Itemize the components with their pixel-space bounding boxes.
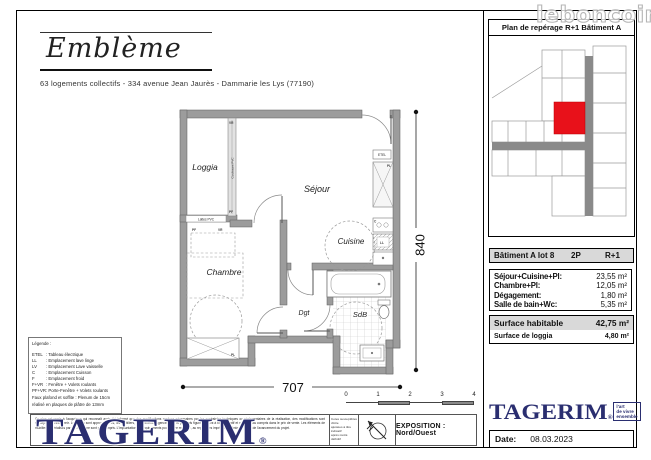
scale-tick: 1: [376, 392, 379, 398]
program-logo: Emblème: [46, 33, 182, 64]
room-label-loggia: Loggia: [192, 162, 218, 172]
lot-header: Bâtiment A lot 8 2P R+1: [489, 248, 634, 263]
row-label: Chambre+Pl:: [494, 281, 540, 290]
surface-habitable-row: Surface habitable 42,75 m²: [490, 316, 633, 330]
pf-label: PF: [192, 228, 196, 232]
tagerim-logo-small: TAGERIM® l'art de vivre ensemble: [489, 398, 634, 425]
surface-summary: Surface habitable 42,75 m² Surface de lo…: [489, 315, 634, 344]
bathtub: [327, 271, 391, 297]
scale-tick: 2: [408, 392, 411, 398]
door-arc: [288, 270, 313, 295]
dimension-note: Cotes susceptibles d'être ajustées à tit…: [329, 415, 358, 445]
lot-title: Bâtiment A lot 8: [490, 251, 571, 260]
room-label-sejour: Séjour: [304, 184, 331, 194]
svg-text:707: 707: [282, 380, 304, 395]
toilet: [378, 300, 390, 305]
floor-plan: VR PF Coulissant PVC Lattes PVC PF VR ET…: [150, 96, 435, 401]
surfaces-table: Séjour+Cuisine+Pl: 23,55 m² Chambre+Pl: …: [489, 269, 632, 311]
legend-title: Légende :: [32, 341, 118, 347]
brand-rule-bottom: [40, 69, 212, 71]
vr-label: VR: [218, 228, 223, 232]
table-row: Chambre+Pl: 12,05 m²: [494, 281, 627, 290]
row-label: Séjour+Cuisine+Pl:: [494, 272, 562, 281]
registered-mark: ®: [259, 436, 267, 446]
entrance-door-arc: [362, 115, 391, 144]
table-row: Dégagement: 1,80 m²: [494, 291, 627, 300]
location-map: [490, 37, 631, 232]
column-divider: [483, 10, 484, 447]
program-address: 63 logements collectifs - 334 avenue Jea…: [40, 79, 314, 88]
legend-note: Faux plafond et soffite : Plenum de 15cm: [32, 395, 118, 401]
corridor-vertical: [585, 56, 593, 216]
compass-cell: [358, 415, 395, 445]
room-label-chambre: Chambre: [207, 267, 242, 277]
room-label-sdb: SdB: [353, 310, 367, 319]
room-label-cuisine: Cuisine: [338, 237, 365, 246]
plan-sheet: Emblème 63 logements collectifs - 334 av…: [0, 0, 651, 460]
etel-box: ETEL: [378, 153, 386, 157]
table-row: Salle de bain+Wc: 5,35 m²: [494, 300, 627, 309]
vr-label: VR: [229, 121, 234, 125]
scale-tick: 0: [344, 392, 347, 398]
lattes-pvc-label: Lattes PVC: [198, 217, 215, 221]
compass-icon: [364, 417, 390, 443]
legend-note: réalisé en plaques de plâtre de 13mm: [32, 402, 118, 408]
row-value: 4,80 m²: [605, 333, 629, 340]
table-row: Séjour+Cuisine+Pl: 23,55 m²: [494, 272, 627, 281]
svg-text:840: 840: [413, 234, 428, 256]
door-arc: [257, 307, 283, 333]
row-value: 23,55 m²: [596, 272, 627, 281]
wardrobe-outline: [191, 233, 235, 257]
pf-label: PF: [229, 210, 233, 214]
lot-type: 2P: [571, 251, 605, 260]
row-label: Surface habitable: [494, 318, 563, 328]
legend-box: Légende : ETEL: Tableau électrique LL: E…: [28, 337, 122, 414]
highlighted-unit: [554, 102, 585, 134]
door-arc: [254, 195, 282, 223]
row-label: Dégagement:: [494, 291, 541, 300]
door-arc: [304, 305, 330, 331]
row-value: 5,35 m²: [601, 300, 627, 309]
scale-tick: 4: [472, 392, 475, 398]
registered-mark: ®: [608, 415, 613, 421]
location-map-box: Plan de repérage R+1 Bâtiment A: [488, 19, 635, 237]
tagerim-tagline: l'art de vivre ensemble: [613, 402, 640, 421]
date-box: Date: 08.03.2023: [489, 430, 634, 448]
leboncoin-watermark: leboncoin: [536, 3, 651, 28]
coulissant-pvc-label: Coulissant PVC: [231, 157, 235, 179]
pl-label: PL: [387, 164, 391, 168]
room-label-dgt: Dgt: [299, 310, 311, 317]
ll-label: LL: [380, 241, 384, 245]
row-label: Surface de loggia: [494, 333, 552, 340]
tagerim-logo-large: TAGERIM®: [36, 411, 267, 454]
corridor-horizontal: [492, 142, 593, 150]
lot-floor: R+1: [605, 251, 633, 260]
scale-bar: 0 1 2 3 4: [346, 392, 474, 405]
row-value: 42,75 m²: [596, 318, 629, 328]
legend-item: PF+VR: Porte-Fenêtre + Volets roulants: [32, 388, 118, 394]
scale-tick: 3: [440, 392, 443, 398]
surface-loggia-row: Surface de loggia 4,80 m²: [490, 330, 633, 342]
exposition-label: EXPOSITION : Nord/Ouest: [395, 415, 476, 445]
row-value: 1,80 m²: [601, 291, 627, 300]
date-label: Date:: [495, 434, 516, 444]
row-value: 12,05 m²: [596, 281, 627, 290]
row-label: Salle de bain+Wc:: [494, 300, 557, 309]
date-value: 08.03.2023: [530, 434, 573, 444]
dimension-height: 840: [413, 110, 428, 372]
pl-label: PL: [231, 353, 235, 357]
